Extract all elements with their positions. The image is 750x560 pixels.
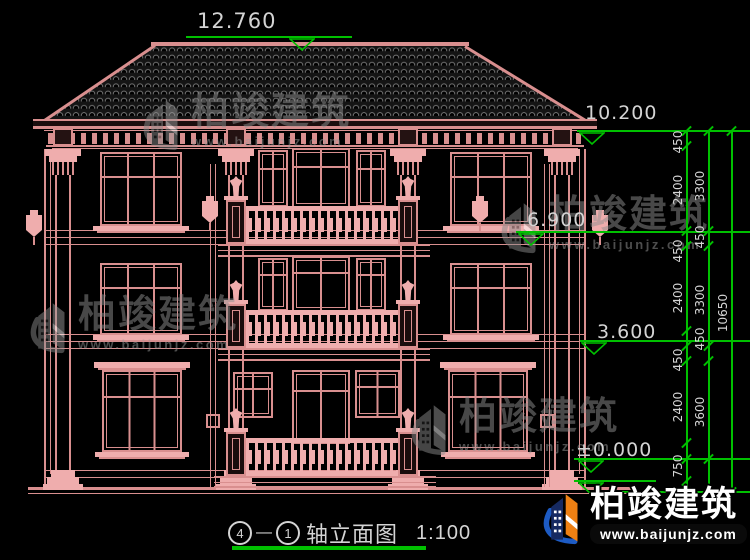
dim-value: 3600 [693,397,707,428]
drawing-title-block: 4 — 1 轴立面图 1:100 [228,517,471,549]
elevation-triangle-icon [578,460,604,478]
axis-bubble-start: 4 [228,521,252,545]
dim-value: 2400 [671,175,685,206]
dim-value: 2400 [671,392,685,423]
title-underline [232,546,426,550]
elevation-triangle-icon [289,38,315,56]
elevation-level-line [516,231,750,233]
elevation-triangle-icon [518,233,544,251]
drawing-title: 轴立面图 [306,517,398,549]
dim-value: 450 [671,349,685,372]
dim-value: 450 [693,226,707,249]
dim-value: 450 [671,240,685,263]
brand-logo-url: www.baijunjz.com [590,524,747,544]
brand-logo: 柏竣建筑 www.baijunjz.com [540,487,747,550]
dim-value: 450 [693,328,707,351]
dim-value: 3300 [693,171,707,202]
dim-value: 450 [671,131,685,154]
elevation-triangle-icon [581,342,607,360]
axis-separator: — [256,524,272,542]
axis-bubble-end: 1 [276,521,300,545]
drawing-scale: 1:100 [416,522,471,545]
elevation-value: 10.200 [585,102,657,124]
elevation-value: 6.900 [527,209,586,231]
dim-chain-line [708,131,710,492]
elevation-value: 12.760 [197,9,276,33]
dim-value: 750 [671,455,685,478]
dim-value: 10650 [716,294,730,332]
brand-logo-text: 柏竣建筑 [590,487,747,522]
brand-logo-icon [540,487,586,550]
elevation-level-line [186,36,352,38]
cad-canvas: 柏竣建筑 www.baijunjz.com 柏竣建筑 www.baijunjz.… [0,0,750,560]
dim-chain-line [731,131,733,492]
annotation-layer: 12.76010.2006.9003.600±0.000450240045024… [0,0,750,560]
dim-value: 2400 [671,283,685,314]
dim-chain-line [686,131,688,492]
dim-value: 3300 [693,285,707,316]
elevation-triangle-icon [579,132,605,150]
